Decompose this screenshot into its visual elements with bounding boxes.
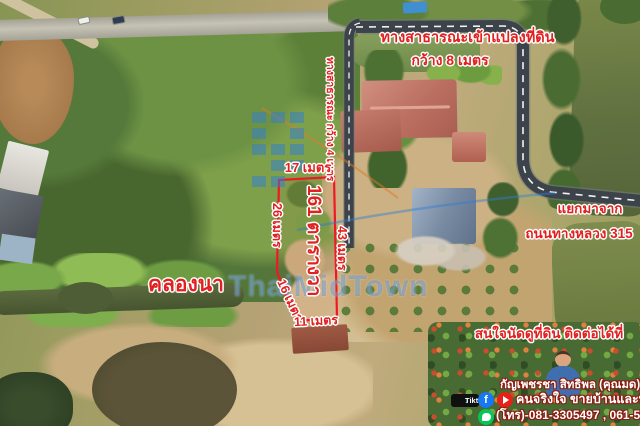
chat-bubble-icon (482, 413, 491, 421)
plot-dim-top: 17 เมตร (281, 161, 335, 176)
contact-phone: (โทร)-081-3305497 , 061-5765520 (496, 409, 640, 422)
top-road-label-line2: กว้าง 8 เมตร (395, 52, 505, 68)
plot-dim-bottom: 11 เมตร (290, 313, 343, 330)
aerial-land-listing-photo: ThaiMidTown ทางสาธารณะเข้าแปลงที่ดิน กว้… (0, 0, 640, 426)
youtube-icon (497, 392, 513, 408)
junction-label-line2: ถนนทางหลวง 315 (518, 226, 640, 242)
contact-tagline: คนจริงใจ ขายบ้านและที่ดิน (516, 393, 640, 407)
contact-name: กัญเพชรชา สิทธิพล (คุณมด) (500, 379, 640, 392)
tiktok-icon: ♪Tiktok (451, 394, 479, 407)
access-road-label: ทางสาธารณะ กว้าง 4 เมตร (324, 57, 336, 207)
plot-dim-left: 26 เมตร (270, 203, 284, 273)
plot-dim-right: 43 เมตร (335, 226, 349, 296)
facebook-icon: f (478, 392, 494, 408)
play-icon (503, 396, 509, 404)
watermark-brand: ThaiMidTown (228, 270, 528, 304)
canal-label: คลองนา (148, 273, 224, 297)
line-icon (478, 409, 494, 425)
junction-label-line1: แยกมาจาก (545, 201, 635, 217)
top-road-label-line1: ทางสาธารณะเข้าแปลงที่ดิน (350, 30, 585, 47)
plot-area-label: 161 ตารางวา (302, 185, 324, 317)
cta-text: สนใจนัดดูที่ดิน ติดต่อได้ที่ (460, 326, 638, 342)
